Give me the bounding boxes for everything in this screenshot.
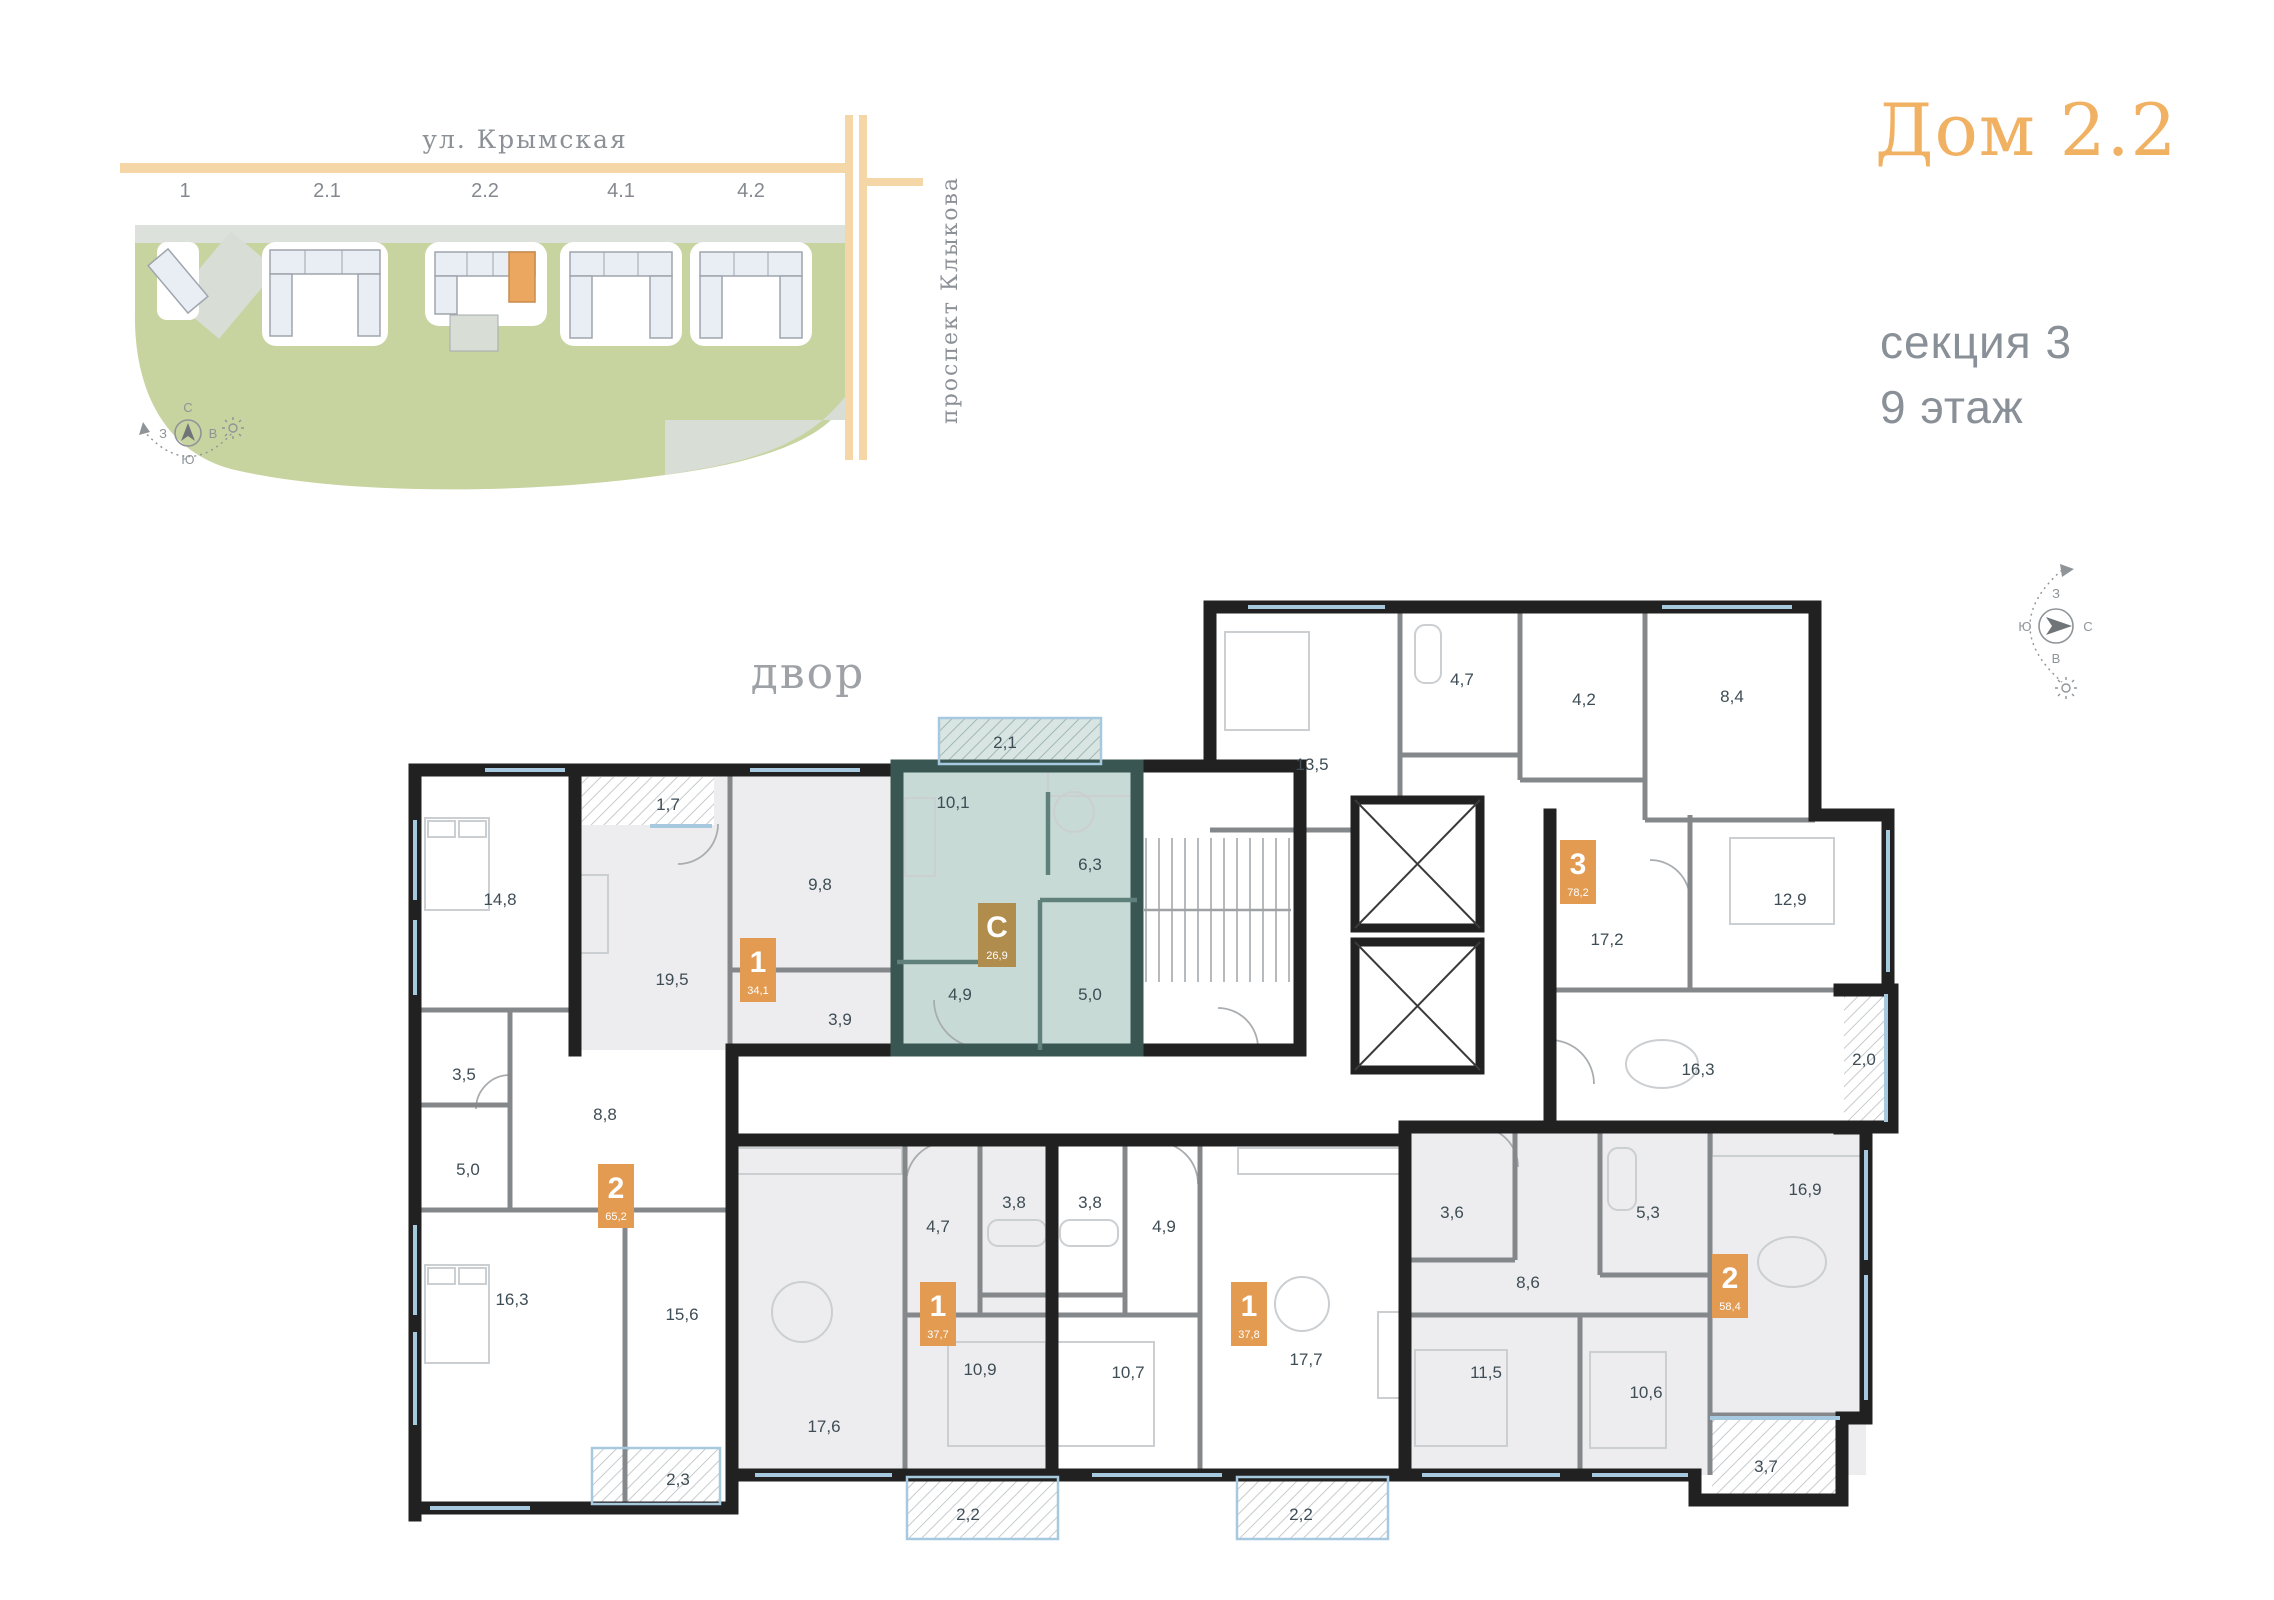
svg-text:1: 1	[750, 946, 767, 979]
room-label: 10,6	[1629, 1383, 1662, 1402]
svg-text:1: 1	[1241, 1290, 1258, 1323]
road-krymskaya	[120, 163, 853, 173]
room-label: 2,1	[993, 733, 1017, 752]
badge-apartment-2-65[interactable]: 2 65,2	[598, 1164, 634, 1228]
room-label: 3,7	[1754, 1457, 1778, 1476]
road-klykova-1	[845, 115, 853, 460]
room-label: 8,4	[1720, 687, 1744, 706]
room-label: 2,2	[956, 1505, 980, 1524]
badge-apartment-1-37-7[interactable]: 1 37,7	[920, 1282, 956, 1346]
site-building-4-1[interactable]	[560, 242, 682, 346]
elevators	[1355, 800, 1480, 1070]
room-label: 16,9	[1788, 1180, 1821, 1199]
room-label: 19,5	[655, 970, 688, 989]
svg-text:58,4: 58,4	[1719, 1301, 1740, 1313]
room-label: 8,6	[1516, 1273, 1540, 1292]
room-label: 15,6	[665, 1305, 698, 1324]
room-label: 4,7	[1450, 670, 1474, 689]
compass-e: В	[209, 426, 218, 441]
plan-sun-icon	[2055, 677, 2077, 699]
room-label: 3,6	[1440, 1203, 1464, 1222]
floor-label: 9 этаж	[1880, 375, 2072, 440]
courtyard-label: двор	[751, 648, 866, 699]
room-label: 4,2	[1572, 690, 1596, 709]
plan-compass-w: З	[2052, 586, 2060, 601]
balcony-2-3	[592, 1448, 720, 1504]
site-building-1[interactable]	[148, 242, 208, 320]
plan-compass-e: В	[2052, 651, 2061, 666]
site-label-1: 1	[179, 180, 190, 202]
balcony-2-1-studio	[939, 718, 1101, 764]
room-label: 3,8	[1078, 1193, 1102, 1212]
room-label: 2,3	[666, 1470, 690, 1489]
badge-apartment-1-37-8[interactable]: 1 37,8	[1231, 1282, 1267, 1346]
room-label: 17,7	[1289, 1350, 1322, 1369]
svg-text:2: 2	[1722, 1262, 1739, 1295]
svg-text:78,2: 78,2	[1567, 887, 1588, 899]
room-label: 11,5	[1470, 1363, 1502, 1382]
staircase	[1144, 838, 1291, 982]
room-label: 4,9	[1152, 1217, 1176, 1236]
room-labels: 1,7 14,8 9,8 19,5 3,9 3,5 5,0 8,8 16,3 1…	[452, 670, 1876, 1524]
site-building-2-1[interactable]	[262, 242, 388, 346]
site-map: ул. Крымская проспект Клыкова	[105, 90, 985, 520]
room-label: 13,5	[1295, 755, 1328, 774]
badge-apartment-2-58[interactable]: 2 58,4	[1712, 1254, 1748, 1318]
badge-apartment-studio-26[interactable]: С 26,9	[978, 903, 1016, 967]
room-label: 16,3	[1681, 1060, 1714, 1079]
compass-w: З	[159, 426, 167, 441]
room-label: 12,9	[1773, 890, 1806, 909]
balcony-1-7	[582, 777, 714, 825]
site-building-2-2[interactable]	[425, 242, 547, 326]
room-label: 3,5	[452, 1065, 476, 1084]
plan-compass-arrow-icon	[2046, 617, 2072, 635]
room-label: 2,0	[1852, 1050, 1876, 1069]
svg-text:2: 2	[608, 1172, 625, 1205]
svg-text:1: 1	[930, 1290, 947, 1323]
room-label: 16,3	[495, 1290, 528, 1309]
room-label: 9,8	[808, 875, 832, 894]
room-label: 2,2	[1289, 1505, 1313, 1524]
svg-text:3: 3	[1570, 848, 1587, 881]
sun-arc-arrow-icon	[139, 422, 150, 435]
plan-sun-arc-arrow-icon	[2060, 564, 2074, 577]
room-label: 10,1	[936, 793, 969, 812]
room-label: 10,7	[1111, 1363, 1144, 1382]
room-label: 14,8	[483, 890, 516, 909]
compass-s: Ю	[181, 452, 194, 467]
room-label: 5,3	[1636, 1203, 1660, 1222]
site-label-2-2: 2.2	[471, 180, 499, 202]
room-label: 4,7	[926, 1217, 950, 1236]
svg-text:37,7: 37,7	[927, 1329, 948, 1341]
section-label: секция 3	[1880, 310, 2072, 375]
site-path	[135, 225, 850, 243]
svg-text:С: С	[986, 911, 1008, 944]
room-label: 6,3	[1078, 855, 1102, 874]
section-floor-info: секция 3 9 этаж	[1880, 310, 2072, 441]
room-label: 5,0	[456, 1160, 480, 1179]
badge-apartment-3-78[interactable]: 3 78,2	[1560, 840, 1596, 904]
site-label-2-1: 2.1	[313, 180, 341, 202]
room-label: 17,6	[807, 1417, 840, 1436]
street-right-label: проспект Клыкова	[938, 176, 963, 424]
svg-text:26,9: 26,9	[986, 950, 1007, 962]
apartment-studio-area[interactable]	[897, 766, 1137, 1050]
site-section-3-highlight[interactable]	[509, 252, 535, 302]
room-label: 3,8	[1002, 1193, 1026, 1212]
room-label: 3,9	[828, 1010, 852, 1029]
svg-text:34,1: 34,1	[747, 985, 768, 997]
page-title: Дом 2.2	[1875, 88, 2177, 172]
page: Дом 2.2 секция 3 9 этаж ул. Крымская про…	[0, 0, 2274, 1600]
plan-compass-n: С	[2083, 619, 2092, 634]
apartment-1-37-7-area[interactable]	[732, 1140, 1052, 1475]
balcony-2-2-left	[907, 1477, 1058, 1539]
site-label-4-2: 4.2	[737, 180, 765, 202]
svg-text:65,2: 65,2	[605, 1211, 626, 1223]
room-label: 5,0	[1078, 985, 1102, 1004]
svg-text:37,8: 37,8	[1238, 1329, 1259, 1341]
room-label: 17,2	[1590, 930, 1623, 949]
floor-plan: двор	[400, 570, 1910, 1580]
compass-n: С	[183, 400, 192, 415]
badge-apartment-1-34[interactable]: 1 34,1	[740, 938, 776, 1002]
road-stub	[867, 178, 923, 186]
street-top-label: ул. Крымская	[422, 125, 627, 154]
site-label-4-1: 4.1	[607, 180, 635, 202]
room-label: 10,9	[963, 1360, 996, 1379]
site-school-block	[450, 315, 498, 351]
room-label: 1,7	[656, 795, 680, 814]
site-building-4-2[interactable]	[690, 242, 812, 346]
room-label: 4,9	[948, 985, 972, 1004]
plan-compass: З Ю С В	[1990, 548, 2150, 708]
road-klykova-2	[859, 115, 867, 460]
room-label: 8,8	[593, 1105, 617, 1124]
